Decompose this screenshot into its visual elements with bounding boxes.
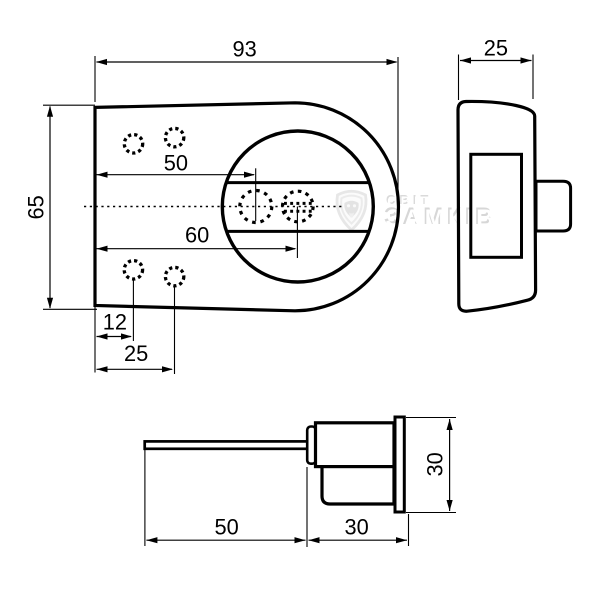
svg-text:25: 25 (124, 341, 148, 366)
svg-text:30: 30 (345, 514, 369, 539)
svg-text:30: 30 (423, 452, 448, 476)
svg-text:65: 65 (24, 195, 49, 219)
svg-text:93: 93 (233, 37, 257, 62)
svg-text:25: 25 (484, 35, 508, 60)
svg-text:12: 12 (103, 309, 127, 334)
svg-text:60: 60 (185, 223, 209, 248)
svg-text:ЗАМКІВ: ЗАМКІВ (386, 205, 497, 232)
svg-text:50: 50 (215, 514, 239, 539)
svg-text:50: 50 (164, 150, 188, 175)
